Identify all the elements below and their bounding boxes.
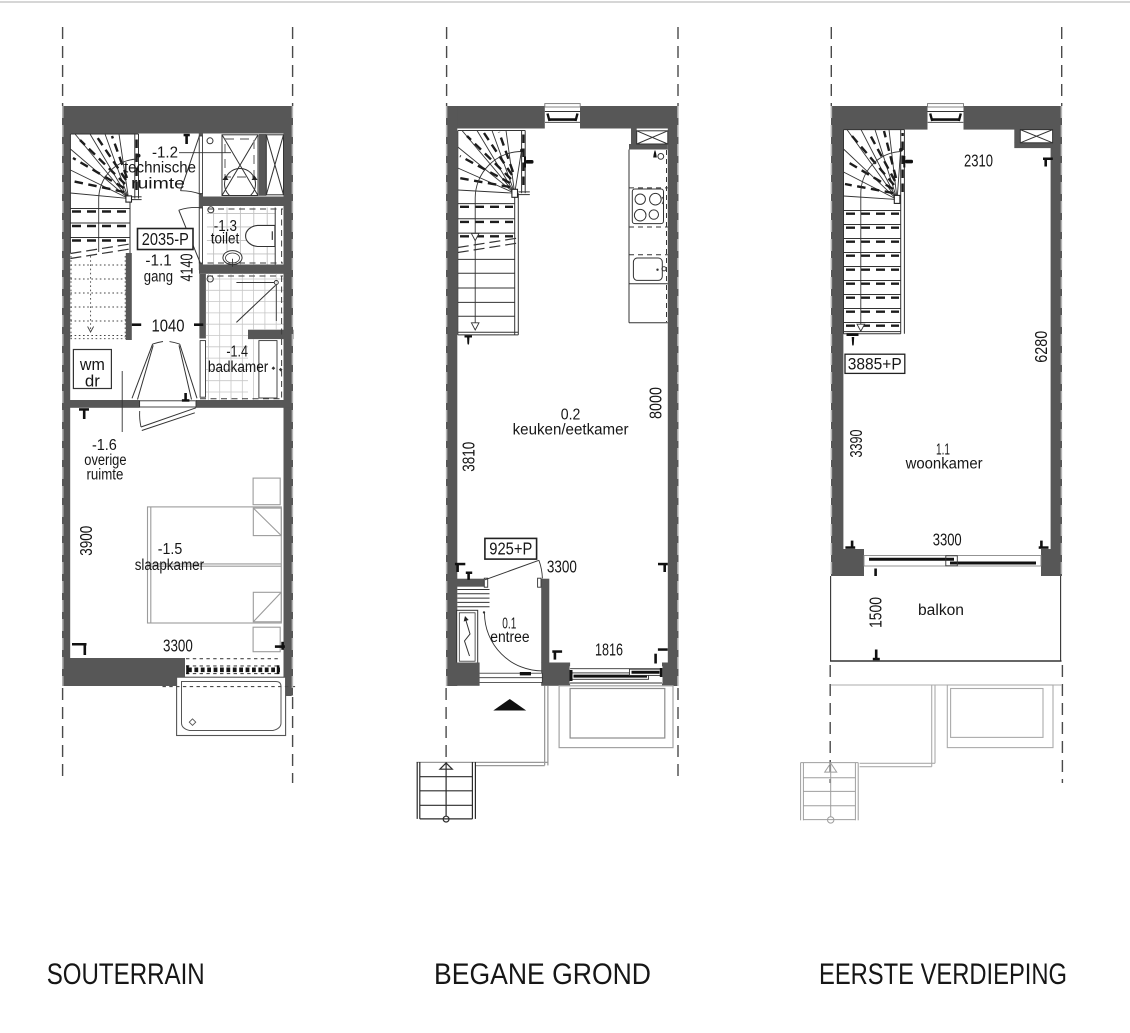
svg-text:1816: 1816 [595, 639, 623, 659]
svg-text:EERSTE VERDIEPING: EERSTE VERDIEPING [819, 958, 1067, 991]
svg-text:slaapkamer: slaapkamer [135, 557, 204, 574]
svg-text:6280: 6280 [1031, 330, 1051, 362]
svg-text:1500: 1500 [866, 597, 886, 628]
svg-text:925+P: 925+P [489, 539, 532, 559]
svg-text:toilet: toilet [211, 231, 240, 248]
svg-text:8000: 8000 [646, 387, 666, 419]
svg-text:ruimte: ruimte [86, 466, 123, 483]
svg-text:gang: gang [144, 269, 173, 286]
svg-text:2310: 2310 [964, 151, 993, 171]
svg-text:4140: 4140 [177, 253, 197, 281]
svg-text:BEGANE GROND: BEGANE GROND [434, 958, 651, 991]
svg-text:technische: technische [124, 160, 196, 177]
svg-text:3885+P: 3885+P [848, 355, 902, 374]
svg-text:1040: 1040 [152, 316, 185, 336]
svg-text:2035-P: 2035-P [142, 229, 189, 249]
svg-text:3300: 3300 [933, 530, 962, 550]
svg-text:SOUTERRAIN: SOUTERRAIN [47, 958, 205, 991]
svg-text:-1.5: -1.5 [158, 541, 183, 558]
svg-text:woonkamer: woonkamer [905, 456, 983, 473]
svg-text:-1.1: -1.1 [145, 252, 171, 269]
svg-text:ruimte: ruimte [131, 176, 185, 193]
svg-text:3390: 3390 [846, 429, 866, 457]
svg-text:3300: 3300 [163, 635, 193, 655]
svg-text:3300: 3300 [547, 557, 577, 577]
svg-text:entree: entree [490, 629, 529, 646]
svg-text:3900: 3900 [76, 526, 96, 556]
svg-text:badkamer: badkamer [208, 359, 268, 376]
svg-text:3810: 3810 [459, 441, 479, 471]
svg-text:dr: dr [85, 372, 100, 391]
svg-text:keuken/eetkamer: keuken/eetkamer [513, 421, 629, 438]
svg-text:balkon: balkon [918, 602, 964, 619]
